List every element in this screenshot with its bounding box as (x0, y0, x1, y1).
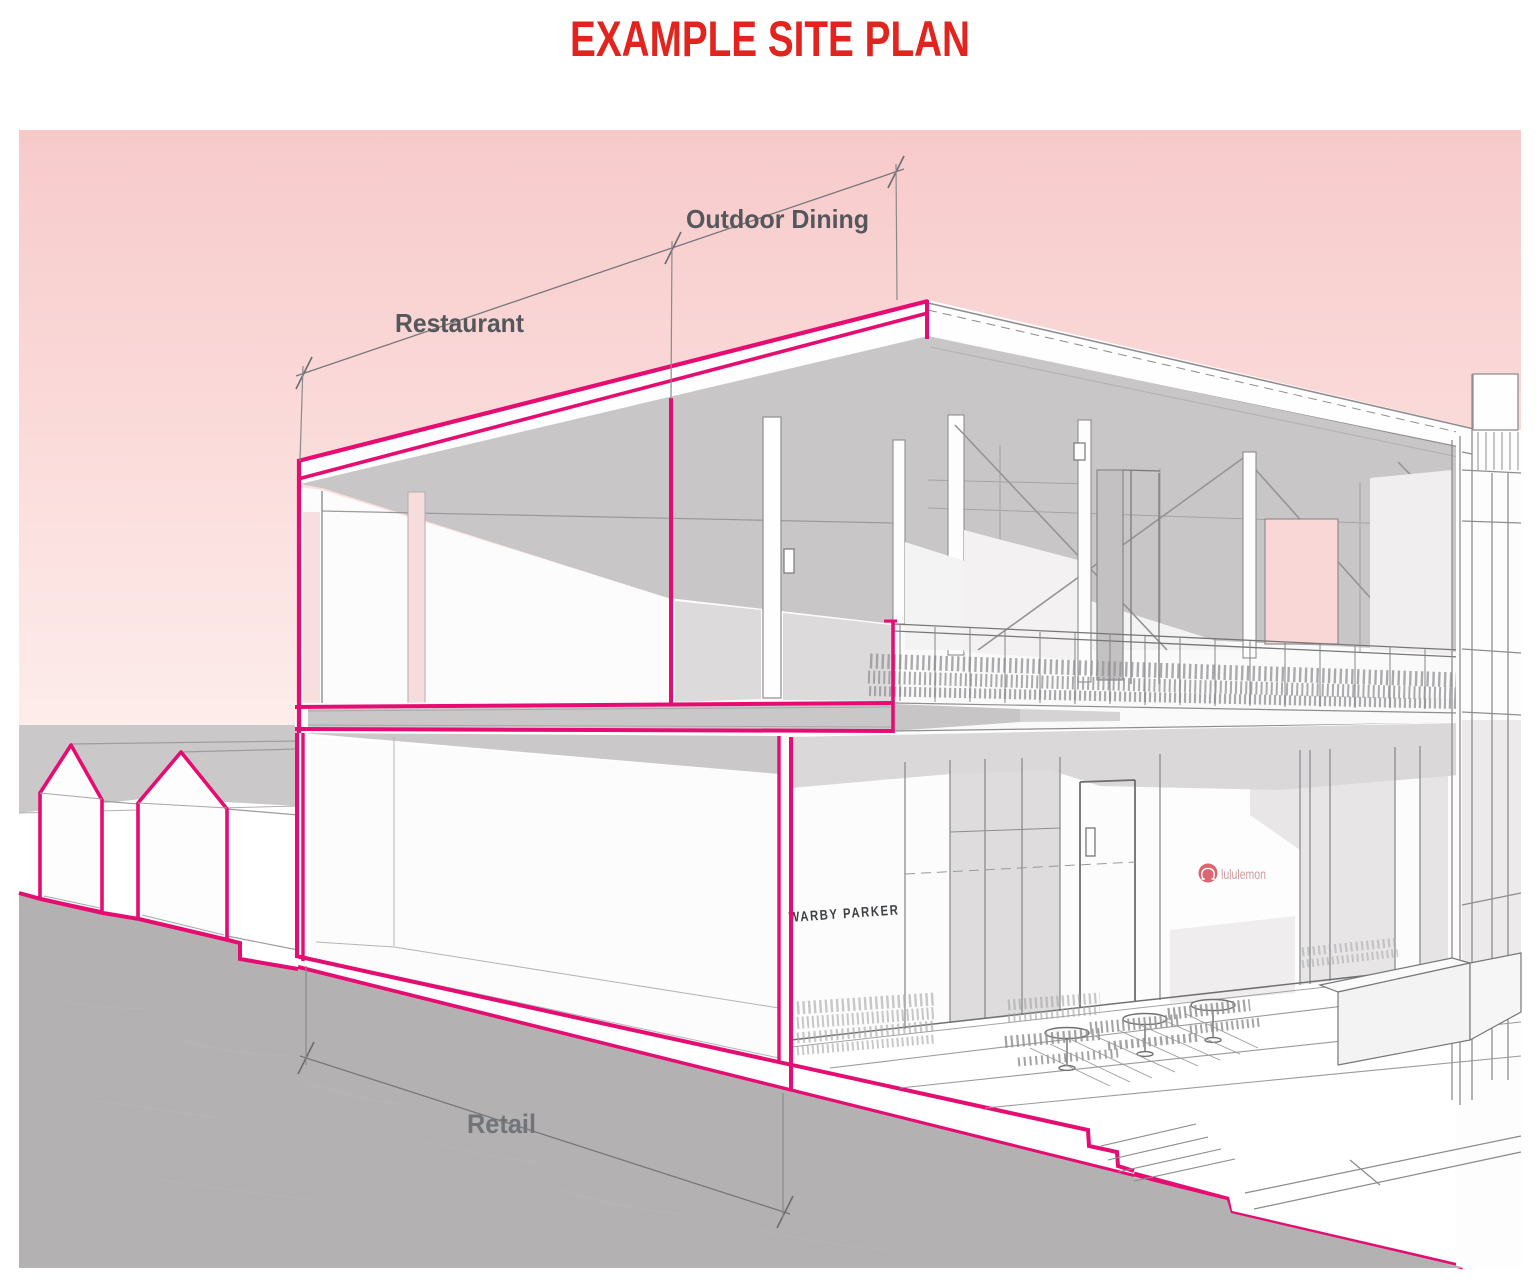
svg-text:Restaurant: Restaurant (395, 308, 524, 338)
svg-text:Retail: Retail (467, 1109, 536, 1139)
svg-text:Outdoor Dining: Outdoor Dining (686, 204, 869, 234)
svg-text:lululemon: lululemon (1221, 867, 1266, 882)
svg-text:EXAMPLE SITE PLAN: EXAMPLE SITE PLAN (570, 11, 970, 67)
